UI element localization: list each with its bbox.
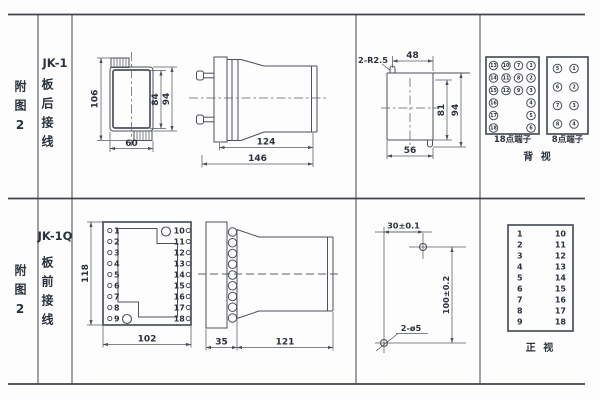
label-2-r2.5: 2-R2.5 xyxy=(358,55,391,71)
svg-text:30±0.1: 30±0.1 xyxy=(387,221,420,231)
jk1-rear-view: 106 84 94 60 xyxy=(91,52,178,152)
table-right-column: 10 11 12 13 14 15 16 17 18 xyxy=(555,230,567,327)
drawing-canvas: 106 84 94 60 xyxy=(0,0,600,400)
terminal-cell: 17 xyxy=(489,111,498,120)
svg-text:10: 10 xyxy=(503,63,510,69)
terminal-cell: 3 xyxy=(527,86,536,95)
svg-text:12: 12 xyxy=(174,248,185,257)
svg-text:5: 5 xyxy=(517,274,523,283)
svg-text:7: 7 xyxy=(517,296,523,305)
dim-118: 118 xyxy=(81,222,103,325)
terminal-screw xyxy=(197,115,215,124)
svg-text:1: 1 xyxy=(517,230,523,239)
panel-plate xyxy=(206,222,227,328)
svg-text:106: 106 xyxy=(91,90,101,109)
svg-text:13: 13 xyxy=(490,63,497,69)
svg-text:18: 18 xyxy=(490,126,497,132)
svg-text:146: 146 xyxy=(248,154,267,164)
jk1-side-view: 124 146 xyxy=(189,57,329,168)
dim-102: 102 xyxy=(103,326,191,348)
terminal-cell: 15 xyxy=(489,86,498,95)
svg-text:16: 16 xyxy=(490,101,497,107)
terminal-cell: 7 xyxy=(553,101,562,110)
svg-text:13: 13 xyxy=(555,263,566,272)
svg-text:15: 15 xyxy=(490,88,497,94)
dim-48: 48 xyxy=(393,51,434,71)
svg-text:14: 14 xyxy=(174,270,186,279)
terminal-cell: 8 xyxy=(553,120,562,129)
figure-page: 附图2 JK-1 板后接线 附图2 JK-1Q 板前接线 xyxy=(0,0,600,400)
svg-text:60: 60 xyxy=(125,139,138,149)
svg-text:7: 7 xyxy=(517,63,520,69)
terminal-screw xyxy=(197,71,215,80)
dim-100: 100±0.2 xyxy=(441,247,452,343)
terminal-screw-column xyxy=(228,228,236,322)
terminal-cell: 3 xyxy=(570,101,579,110)
svg-text:5: 5 xyxy=(556,66,559,72)
svg-text:81: 81 xyxy=(437,104,447,117)
svg-text:2-R2.5: 2-R2.5 xyxy=(358,55,388,65)
svg-text:94: 94 xyxy=(162,93,172,106)
panel-cutout: 2-R2.5 48 81 94 xyxy=(358,51,470,159)
dim-146: 146 xyxy=(202,154,313,168)
svg-text:12: 12 xyxy=(503,88,510,94)
svg-text:17: 17 xyxy=(490,113,497,119)
dim-81: 81 xyxy=(433,80,452,140)
svg-text:11: 11 xyxy=(503,76,510,82)
svg-text:2: 2 xyxy=(572,85,575,91)
terminal-cell: 5 xyxy=(553,64,562,73)
svg-text:7: 7 xyxy=(556,103,559,109)
front-view-label: 正 视 xyxy=(526,341,555,354)
terminal-cell: 8 xyxy=(514,74,523,83)
jk1q-side-view: 35 121 xyxy=(198,222,341,351)
svg-text:5: 5 xyxy=(114,270,120,279)
label-2-holes: 2-ø5 xyxy=(396,323,428,334)
mounting-hole xyxy=(162,227,171,236)
terminal-cell: 5 xyxy=(527,111,536,120)
svg-text:3: 3 xyxy=(529,88,532,94)
svg-text:118: 118 xyxy=(81,264,91,283)
jk1q-front-view: 1 2 3 4 5 6 7 8 9 10 11 12 13 14 15 16 1… xyxy=(81,222,191,348)
table-left-column: 1 2 3 4 5 6 7 8 9 xyxy=(517,230,523,327)
svg-text:4: 4 xyxy=(517,263,523,272)
terminal-cell: 1 xyxy=(570,64,579,73)
front-left-terminals: 1 2 3 4 5 6 7 8 9 xyxy=(108,226,120,323)
dim-35: 35 xyxy=(206,319,237,351)
svg-text:94: 94 xyxy=(451,104,461,117)
svg-text:121: 121 xyxy=(276,338,295,348)
svg-text:17: 17 xyxy=(555,307,566,316)
svg-text:14: 14 xyxy=(555,274,567,283)
svg-text:10: 10 xyxy=(555,230,567,239)
terminal-cell: 1 xyxy=(527,61,536,70)
terminal-cell: 12 xyxy=(502,86,511,95)
dim-121: 121 xyxy=(237,312,333,351)
svg-text:3: 3 xyxy=(572,103,575,109)
svg-text:8: 8 xyxy=(517,307,523,316)
svg-text:16: 16 xyxy=(555,296,567,305)
back-view-terminals: 13 10 7 1 14 11 8 2 15 12 9 3 16 4 17 5 … xyxy=(486,57,588,163)
svg-text:9: 9 xyxy=(114,314,120,323)
svg-text:6: 6 xyxy=(114,281,120,290)
terminal-cell: 4 xyxy=(527,99,536,108)
svg-text:16: 16 xyxy=(174,292,186,301)
svg-text:100±0.2: 100±0.2 xyxy=(441,276,451,314)
svg-text:18: 18 xyxy=(555,318,567,327)
svg-text:18: 18 xyxy=(174,314,186,323)
mounting-hole xyxy=(123,315,132,324)
terminal-cell: 4 xyxy=(570,120,579,129)
bottom-notch-r2.5 xyxy=(428,140,433,147)
terminal-cell: 13 xyxy=(489,61,498,70)
front-step-shape xyxy=(118,229,178,318)
svg-text:2-ø5: 2-ø5 xyxy=(401,323,422,333)
terminal-cell: 9 xyxy=(514,86,523,95)
front-right-terminals: 10 11 12 13 14 15 16 17 18 xyxy=(174,226,191,323)
rear-top-terminal-hatched xyxy=(111,58,129,68)
svg-text:10: 10 xyxy=(174,226,186,235)
svg-text:124: 124 xyxy=(257,138,276,148)
body-outline xyxy=(227,60,317,141)
svg-text:2: 2 xyxy=(529,76,532,82)
table-grid xyxy=(8,15,585,385)
svg-text:1: 1 xyxy=(572,66,575,72)
svg-text:35: 35 xyxy=(215,338,228,348)
label-18-point: 18点端子 xyxy=(494,134,532,145)
svg-text:15: 15 xyxy=(174,281,186,290)
dim-30: 30±0.1 xyxy=(375,221,432,233)
svg-text:6: 6 xyxy=(517,285,523,294)
svg-text:3: 3 xyxy=(517,252,523,261)
front-view-table: 1 2 3 4 5 6 7 8 9 10 11 12 13 14 15 16 1… xyxy=(508,225,573,354)
svg-text:14: 14 xyxy=(490,76,497,82)
terminal-cell: 18 xyxy=(489,124,498,133)
terminal-cell: 2 xyxy=(570,83,579,92)
svg-text:5: 5 xyxy=(529,113,532,119)
drill-hole-top xyxy=(409,233,466,259)
svg-text:11: 11 xyxy=(555,241,567,250)
svg-text:8: 8 xyxy=(114,303,120,312)
svg-text:1: 1 xyxy=(529,63,532,69)
svg-text:102: 102 xyxy=(138,335,157,345)
svg-text:12: 12 xyxy=(555,252,566,261)
svg-text:1: 1 xyxy=(114,226,120,235)
terminal-cell: 2 xyxy=(527,74,536,83)
terminal-cell: 6 xyxy=(527,124,536,133)
svg-text:11: 11 xyxy=(174,237,186,246)
terminal-cell: 7 xyxy=(514,61,523,70)
terminal-cell: 6 xyxy=(553,83,562,92)
back-view-label: 背 视 xyxy=(523,150,552,163)
flange-plate xyxy=(214,57,227,142)
svg-text:2: 2 xyxy=(114,237,120,246)
terminal-cell: 14 xyxy=(489,74,498,83)
svg-text:48: 48 xyxy=(406,51,419,61)
svg-text:15: 15 xyxy=(555,285,567,294)
svg-text:7: 7 xyxy=(114,292,120,301)
svg-text:9: 9 xyxy=(517,318,523,327)
svg-text:17: 17 xyxy=(174,303,185,312)
svg-text:4: 4 xyxy=(114,259,120,268)
terminal-cell: 10 xyxy=(502,61,511,70)
terminal-cell: 16 xyxy=(489,99,498,108)
svg-text:2: 2 xyxy=(517,241,523,250)
svg-text:84: 84 xyxy=(151,93,161,106)
label-8-point: 8点端子 xyxy=(552,134,584,145)
terminal-cell: 11 xyxy=(502,74,511,83)
svg-text:13: 13 xyxy=(174,259,185,268)
drilling-plan: 30±0.1 100±0.2 2-ø5 xyxy=(375,221,466,354)
svg-text:56: 56 xyxy=(404,146,417,156)
svg-text:3: 3 xyxy=(114,248,120,257)
